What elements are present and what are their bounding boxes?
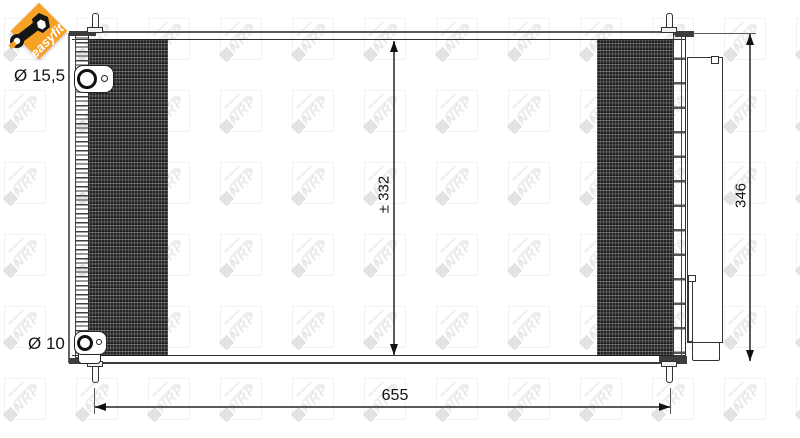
nrf-watermark-tile: NRF (220, 162, 262, 204)
nrf-watermark-tile: NRF (292, 306, 334, 348)
nrf-watermark-tile: NRF (292, 162, 334, 204)
nrf-watermark-tile: NRF (292, 378, 334, 420)
label-top-fitting-diameter: Ø 15,5 (14, 66, 76, 86)
inlet-fitting-port-large (77, 69, 97, 89)
nrf-watermark-tile: NRF (508, 162, 550, 204)
nrf-watermark-tile: NRF (724, 234, 766, 276)
nrf-watermark-tile: NRF (148, 378, 190, 420)
nrf-watermark-tile: NRF (796, 234, 800, 276)
mounting-pin-bottom-left (92, 366, 99, 383)
label-bottom-fitting-diameter: Ø 10 (28, 334, 80, 354)
nrf-watermark-tile: NRF (364, 306, 406, 348)
dim-core-height-label: ± 332 (376, 163, 393, 227)
nrf-watermark-tile: NRF (292, 234, 334, 276)
dim-core-height-arrow-top (390, 41, 398, 52)
nrf-watermark-tile: NRF (796, 18, 800, 60)
dim-width-line (95, 406, 670, 408)
drier-pickup-tube (688, 281, 693, 342)
nrf-watermark-tile: NRF (76, 378, 118, 420)
nrf-watermark-tile: NRF (4, 378, 46, 420)
nrf-watermark-tile: NRF (4, 234, 46, 276)
nrf-watermark-tile: NRF (292, 90, 334, 132)
nrf-watermark-tile: NRF (508, 306, 550, 348)
dim-overall-height-arrow-bottom (746, 350, 754, 361)
nrf-watermark-tile: NRF (652, 378, 694, 420)
nrf-watermark-tile: NRF (508, 378, 550, 420)
right-header-tank (673, 33, 686, 363)
receiver-drier-bottom (692, 343, 720, 361)
nrf-watermark-tile: NRF (436, 234, 478, 276)
bottom-tank-bar (72, 355, 686, 364)
dim-overall-height-arrow-top (746, 34, 754, 45)
nrf-watermark-tile: NRF (508, 234, 550, 276)
nrf-watermark-tile: NRF (724, 306, 766, 348)
nrf-watermark-tile: NRF (796, 162, 800, 204)
nrf-watermark-tile: NRF (436, 378, 478, 420)
nrf-watermark-tile: NRF (508, 90, 550, 132)
nrf-watermark-tile: NRF (724, 90, 766, 132)
nrf-watermark-tile: NRF (724, 18, 766, 60)
right-tank-inner-line (681, 33, 682, 363)
nrf-watermark-tile: NRF (220, 378, 262, 420)
nrf-watermark-tile: NRF (364, 90, 406, 132)
inlet-fitting-top (74, 65, 114, 93)
nrf-watermark-tile: NRF (220, 234, 262, 276)
nrf-watermark-tile: NRF (580, 378, 622, 420)
nrf-watermark-tile: NRF (724, 378, 766, 420)
nrf-watermark-tile: NRF (436, 162, 478, 204)
nrf-watermark-tile: NRF (436, 90, 478, 132)
inlet-fitting-port-small (101, 75, 108, 82)
nrf-watermark-tile: NRF (796, 378, 800, 420)
corner-top-right (675, 31, 694, 37)
fin-block-right (597, 39, 673, 356)
mounting-pin-top-right-base (661, 27, 677, 33)
nrf-watermark-tile: NRF (220, 90, 262, 132)
dim-core-height-line (393, 41, 395, 355)
nrf-watermark-tile: NRF (4, 90, 46, 132)
technical-drawing-page: NRFNRFNRFNRFNRFNRFNRFNRFNRFNRFNRFNRFNRFN… (0, 0, 800, 438)
mounting-pin-bottom-right (666, 366, 673, 383)
dim-width-arrow-left (95, 403, 106, 411)
nrf-watermark-tile: NRF (364, 234, 406, 276)
dim-width-arrow-right (659, 403, 670, 411)
dim-overall-height-label: 346 (733, 167, 750, 225)
nrf-watermark-tile: NRF (436, 306, 478, 348)
receiver-drier-top-notch (711, 56, 719, 64)
nrf-watermark-tile: NRF (796, 306, 800, 348)
dim-core-height-arrow-bottom (390, 344, 398, 355)
nrf-watermark-tile: NRF (4, 162, 46, 204)
mounting-pin-top-left-base (87, 27, 103, 33)
nrf-watermark-tile: NRF (220, 306, 262, 348)
dim-width-label: 655 (355, 387, 435, 405)
nrf-watermark-tile: NRF (796, 90, 800, 132)
outlet-fitting-port-small (96, 339, 102, 345)
